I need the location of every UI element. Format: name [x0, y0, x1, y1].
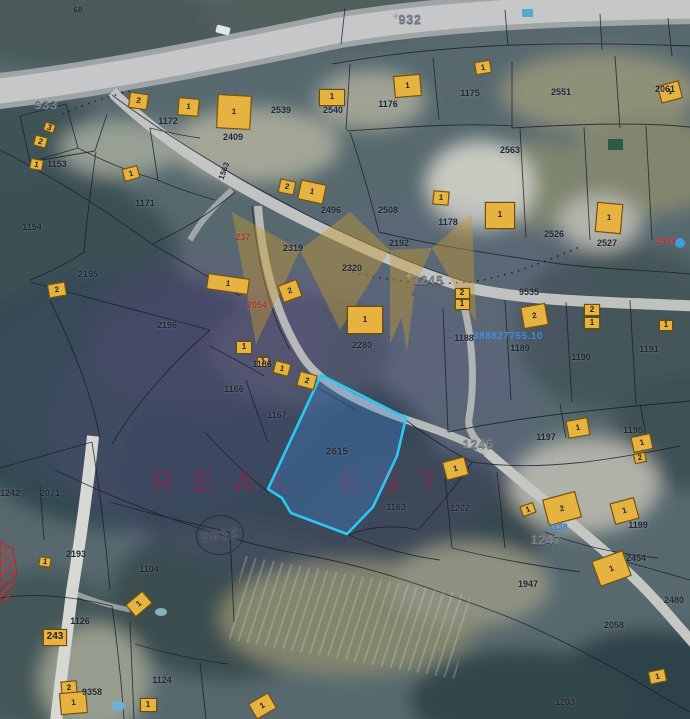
building-footprint[interactable]: 2	[47, 282, 67, 299]
parcel-number-label: 1188	[454, 333, 474, 343]
building-footprint[interactable]: 1	[584, 317, 600, 329]
parcel-number-label: 1178	[438, 217, 458, 227]
road-number-label: 932	[398, 12, 421, 27]
parcel-number-label: 1126	[70, 616, 90, 626]
highlighted-parcel-number: 2615	[326, 447, 348, 458]
building-number: 1	[575, 424, 581, 433]
parcel-number-label: 2058	[604, 620, 624, 630]
parcel-number-label: 2196	[157, 320, 177, 330]
parcel-number-label: 2527	[597, 238, 617, 248]
building-footprint[interactable]: 2	[278, 178, 297, 195]
labels-overlay: 3212111121111111221111221221111121121111…	[0, 0, 690, 719]
parcel-number-label: 2195	[78, 269, 98, 279]
parcel-number-label: 1198	[623, 425, 643, 435]
building-footprint[interactable]: 1	[38, 556, 52, 568]
building-footprint[interactable]: 1	[122, 165, 141, 182]
building-number: 2	[304, 376, 310, 385]
building-footprint[interactable]: 1	[257, 357, 269, 367]
building-number: 1	[525, 504, 532, 513]
building-number: 1	[608, 563, 615, 572]
parcel-number-label: 1199	[628, 520, 648, 530]
building-number: 1	[146, 701, 150, 709]
building-footprint[interactable]: 1	[631, 433, 654, 453]
parcel-number-label: 1166	[224, 384, 244, 394]
building-number: 1	[590, 319, 594, 327]
building-number: 1	[135, 600, 144, 609]
building-number: 1	[404, 82, 409, 90]
building-number: 1	[70, 699, 75, 707]
building-footprint[interactable]: 2	[32, 134, 47, 148]
building-footprint[interactable]: 1	[216, 94, 252, 130]
parcel-number-label: 1172	[158, 116, 178, 126]
parcel-number-label: 1203	[555, 697, 575, 707]
building-number: 1	[225, 280, 231, 289]
building-footprint[interactable]: 1	[59, 691, 88, 715]
parcel-number-label-red: 2054	[247, 300, 267, 310]
parcel-number-label: 2454	[626, 553, 646, 563]
parcel-number-label: 1167	[267, 410, 287, 420]
building-number: 1	[621, 507, 627, 516]
building-number: 1	[452, 464, 458, 473]
building-number: 1	[261, 358, 265, 366]
building-number: 1	[330, 93, 334, 101]
building-footprint[interactable]: 1	[659, 320, 673, 331]
building-number: 2	[637, 454, 643, 463]
building-footprint[interactable]: 243	[43, 629, 67, 646]
building-footprint[interactable]: 1	[236, 341, 252, 354]
building-footprint[interactable]: 1	[393, 74, 422, 98]
building-footprint[interactable]: 2	[278, 279, 303, 303]
parcel-number-label: 1163	[386, 502, 406, 512]
building-number: 1	[128, 169, 134, 178]
parcel-number-label: 1190	[571, 352, 591, 362]
parcel-number-label: 1202	[450, 503, 470, 513]
building-number: 1	[639, 439, 645, 448]
parcel-number-label: 1242	[0, 488, 20, 498]
parcel-number-label: 2526	[544, 229, 564, 239]
building-footprint[interactable]: 1	[566, 417, 591, 439]
building-number: 2	[559, 504, 565, 513]
building-number: 2	[590, 306, 594, 314]
map-viewport[interactable]: REAL EST 3212111121111111221111221221111…	[0, 0, 690, 719]
parcel-number-label: 2409	[223, 132, 243, 142]
building-footprint[interactable]: 1	[595, 202, 624, 234]
geodetic-point-number: 5012	[201, 525, 240, 546]
building-footprint[interactable]: 1	[647, 668, 666, 684]
parcel-number-label: 1124	[152, 675, 172, 685]
building-number: 1	[667, 88, 673, 97]
building-number: 1	[309, 188, 315, 197]
building-number: 1	[279, 364, 285, 373]
parcel-number-label: 1189	[510, 343, 530, 353]
parcel-number-label: 2540	[323, 105, 343, 115]
building-number: 2	[135, 97, 141, 106]
building-footprint[interactable]: 2	[455, 288, 470, 299]
road-number-label: 933	[34, 98, 57, 113]
building-number: 2	[284, 183, 290, 192]
building-footprint[interactable]: 1	[520, 501, 537, 516]
parcel-number-label: 2563	[500, 145, 520, 155]
parcel-number-label: 9535	[519, 287, 539, 297]
building-footprint[interactable]: 1	[455, 299, 470, 310]
building-number: 3	[46, 122, 53, 131]
building-footprint[interactable]: 1	[140, 698, 157, 712]
parcel-number-label: 2496	[321, 205, 341, 215]
building-footprint[interactable]: 1	[319, 89, 345, 106]
building-footprint[interactable]: 1	[609, 497, 639, 525]
building-number: 1	[664, 321, 668, 329]
building-footprint[interactable]: 1	[177, 97, 199, 117]
building-footprint[interactable]: 3	[42, 121, 55, 133]
building-footprint[interactable]: 2	[127, 92, 148, 110]
parcel-number-label: 1104	[139, 564, 159, 574]
building-number: 2	[54, 286, 60, 295]
building-number: 1	[498, 211, 502, 219]
building-footprint[interactable]: 1	[432, 190, 449, 205]
parcel-number-label: 2508	[378, 205, 398, 215]
building-footprint[interactable]: 2	[296, 370, 317, 389]
building-footprint[interactable]: 2	[520, 303, 548, 329]
building-footprint[interactable]: 2	[584, 304, 600, 316]
parcel-number-label: 2192	[389, 238, 409, 248]
building-footprint[interactable]: 1	[297, 180, 327, 205]
parcel-number-label: 1171	[135, 198, 155, 208]
road-number-label: 1247	[531, 533, 562, 548]
building-number: 1	[232, 108, 237, 116]
building-footprint[interactable]: 2	[633, 452, 647, 464]
building-number: 2	[287, 286, 294, 295]
parcel-number-label: 2551	[551, 87, 571, 97]
road-number-label: 1245	[413, 273, 444, 288]
building-footprint[interactable]: 1	[347, 306, 383, 334]
parcel-number-label: 2480	[664, 595, 684, 605]
parcel-number-label: 68	[74, 6, 83, 15]
parcel-number-label: 2280	[352, 340, 372, 350]
parcel-number-label: 2193	[66, 549, 86, 559]
building-number: 2	[37, 137, 43, 146]
building-footprint[interactable]: 1	[206, 273, 250, 295]
building-footprint[interactable]: 1	[248, 692, 277, 719]
parcel-number-label: 2320	[342, 263, 362, 273]
parcel-number-label: 2539	[271, 105, 291, 115]
building-number: 243	[47, 632, 64, 642]
building-number: 1	[606, 214, 611, 222]
building-number: 1	[363, 316, 367, 324]
road-number-label: 1246	[463, 437, 494, 452]
building-number: 1	[242, 343, 246, 351]
parcel-number-label: 1197	[536, 432, 556, 442]
parcel-number-label: 1154	[22, 222, 42, 232]
parcel-number-label: 2319	[283, 243, 303, 253]
building-number: 1	[258, 701, 266, 710]
building-footprint[interactable]: 1	[125, 591, 152, 617]
building-number: 1	[460, 300, 464, 308]
building-footprint[interactable]: 1	[657, 80, 683, 103]
building-number: 1	[33, 160, 39, 169]
building-footprint[interactable]: 1	[591, 550, 631, 587]
parcel-number-label: 1175	[460, 88, 480, 98]
building-number: 2	[531, 312, 537, 321]
building-number: 2	[460, 289, 464, 297]
parcel-number-label: 1191	[639, 344, 659, 354]
parcel-number-label: 1176	[378, 99, 398, 109]
building-number: 2	[66, 683, 71, 691]
building-number: 1	[438, 194, 443, 202]
building-footprint[interactable]: 1	[29, 157, 44, 170]
parcel-number-label: 1563	[217, 161, 232, 181]
building-number: 1	[42, 558, 48, 567]
building-number: 1	[480, 63, 486, 72]
building-footprint[interactable]: 1	[441, 456, 468, 480]
parcel-number-label: 1947	[518, 579, 538, 589]
building-footprint[interactable]: 1	[273, 360, 292, 377]
parcel-number-label: 2071	[40, 488, 60, 498]
building-number: 1	[654, 672, 660, 681]
parcel-number-label-red: 2529	[656, 236, 676, 246]
building-footprint[interactable]: 1	[474, 59, 492, 75]
building-footprint[interactable]: 2	[542, 491, 582, 526]
parcel-number-label: 1153	[47, 159, 67, 169]
building-footprint[interactable]: 1	[485, 202, 515, 229]
building-number: 1	[185, 103, 190, 111]
parcel-number-label-red: 237	[235, 232, 250, 242]
